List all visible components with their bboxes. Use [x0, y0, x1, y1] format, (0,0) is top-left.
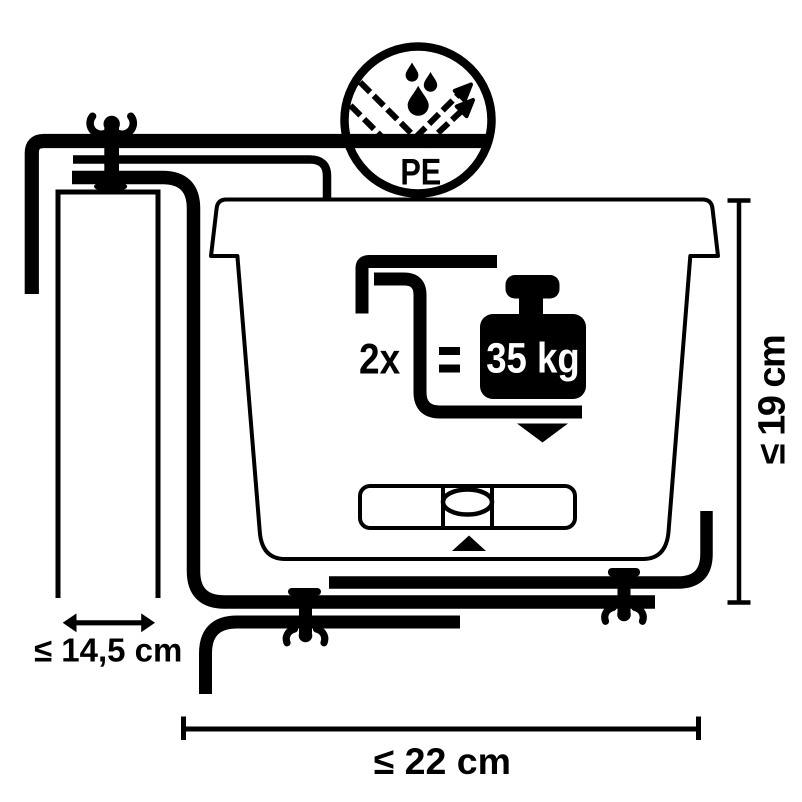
svg-text:≤ 19 cm: ≤ 19 cm [752, 336, 794, 465]
svg-text:PE: PE [400, 152, 441, 193]
svg-text:2x: 2x [359, 336, 400, 383]
svg-text:≤ 14,5 cm: ≤ 14,5 cm [34, 632, 182, 669]
svg-text:35 kg: 35 kg [486, 335, 579, 382]
svg-text:≤ 22 cm: ≤ 22 cm [374, 740, 511, 782]
